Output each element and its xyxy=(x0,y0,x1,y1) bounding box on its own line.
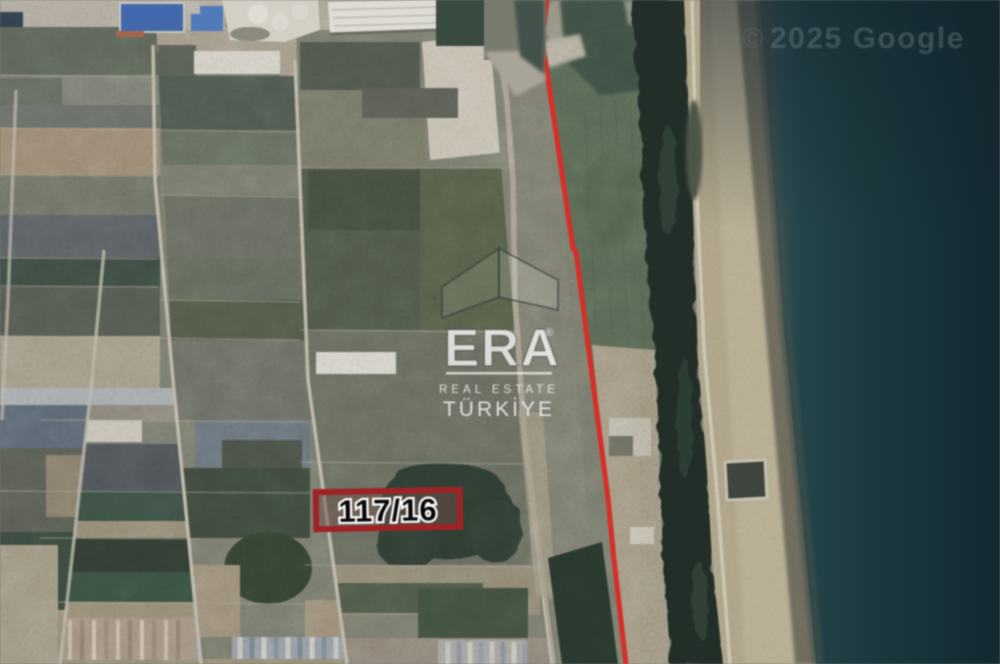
svg-text:2025 Google: 2025 Google xyxy=(770,22,965,55)
svg-text:ERA: ERA xyxy=(444,319,560,378)
svg-text:TÜRKİYE: TÜRKİYE xyxy=(443,398,555,421)
svg-text:®: ® xyxy=(545,327,553,339)
svg-text:©: © xyxy=(742,23,763,55)
svg-text:117/16: 117/16 xyxy=(338,492,438,529)
svg-text:REAL ESTATE: REAL ESTATE xyxy=(439,384,559,396)
